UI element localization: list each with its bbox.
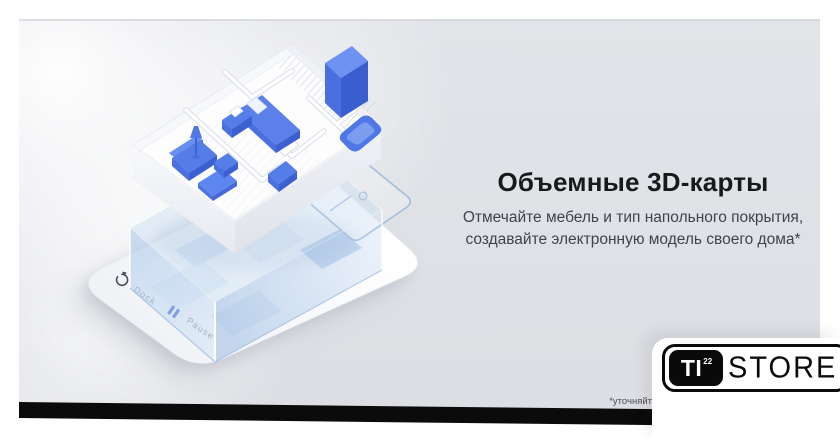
store-logo: TI22 STORE [662, 344, 840, 392]
description-line-1: Отмечайте мебель и тип напольного покрыт… [463, 209, 803, 226]
banner-heading: Объемные 3D-карты [450, 168, 816, 198]
logo-sup-text: 22 [703, 357, 712, 366]
logo-store-text: STORE [728, 353, 837, 383]
3d-map-illustration: Dock Pause [55, 15, 455, 405]
store-logo-card: TI22 STORE [652, 338, 840, 440]
banner-copy: Объемные 3D-карты Отмечайте мебель и тип… [450, 168, 816, 252]
logo-ti-badge: TI22 [669, 350, 723, 386]
logo-ti-text: TI [681, 357, 702, 380]
banner-description: Отмечайте мебель и тип напольного покрыт… [450, 207, 816, 252]
promo-banner: Dock Pause [0, 0, 840, 440]
description-line-2: создавайте электронную модель своего дом… [465, 231, 800, 248]
footnote-text: *уточняйт [609, 396, 652, 407]
